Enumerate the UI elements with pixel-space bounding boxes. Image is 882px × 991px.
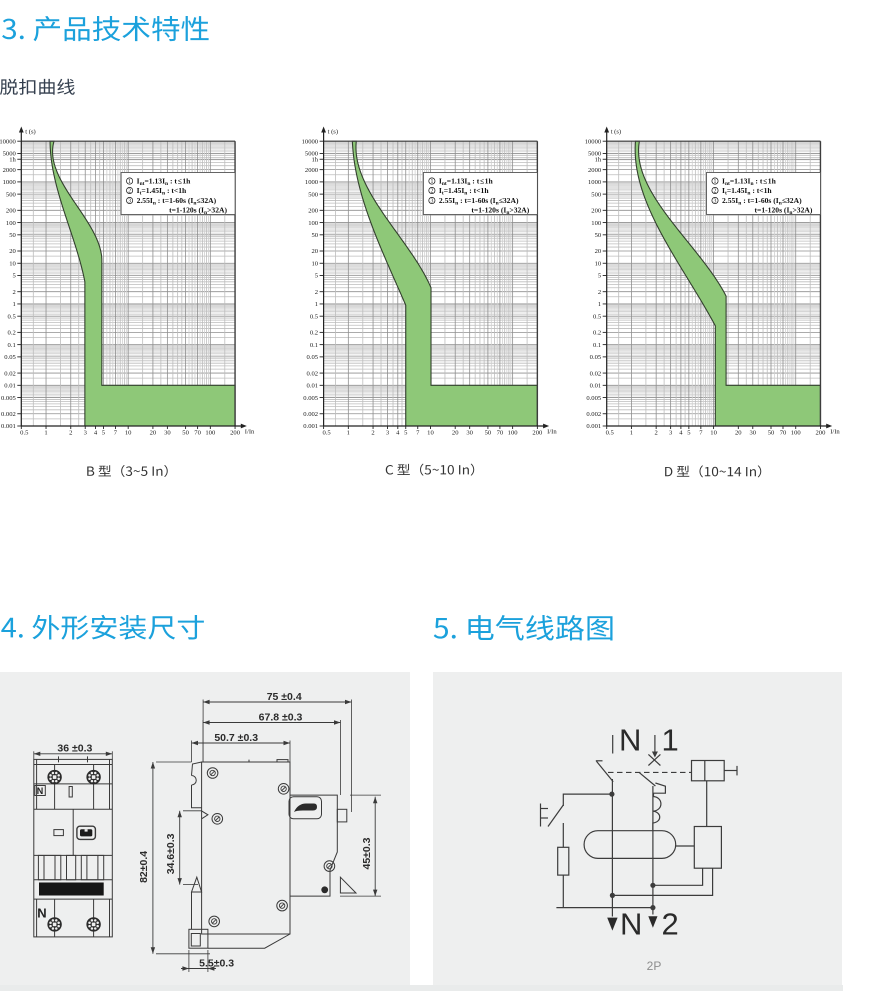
svg-text:200: 200 <box>591 208 602 215</box>
svg-text:3: 3 <box>84 430 88 437</box>
svg-text:0.01: 0.01 <box>590 383 602 390</box>
svg-text:100: 100 <box>308 220 319 227</box>
svg-text:2000: 2000 <box>3 167 17 174</box>
svg-text:1: 1 <box>347 430 350 437</box>
svg-text:20: 20 <box>452 430 459 437</box>
svg-text:7: 7 <box>699 430 703 437</box>
svg-text:0.1: 0.1 <box>593 342 601 349</box>
svg-text:1: 1 <box>128 179 131 185</box>
svg-text:2: 2 <box>371 430 374 437</box>
svg-text:0.01: 0.01 <box>4 383 16 390</box>
svg-text:10: 10 <box>710 430 717 437</box>
svg-text:1h: 1h <box>595 156 602 163</box>
svg-text:4: 4 <box>94 430 98 437</box>
svg-text:0.2: 0.2 <box>593 330 601 337</box>
svg-text:0.02: 0.02 <box>4 370 16 377</box>
svg-text:200: 200 <box>308 208 319 215</box>
svg-text:2: 2 <box>598 289 601 296</box>
svg-text:t (s): t (s) <box>25 129 35 136</box>
svg-text:2: 2 <box>128 189 131 195</box>
svg-text:10000: 10000 <box>585 138 602 145</box>
svg-text:1000: 1000 <box>305 179 319 186</box>
svg-text:0.002: 0.002 <box>303 411 318 418</box>
svg-text:70: 70 <box>194 430 201 437</box>
svg-text:2: 2 <box>69 430 72 437</box>
svg-text:I/In: I/In <box>547 429 557 436</box>
svg-text:It=1.45In : t<1h: It=1.45In : t<1h <box>439 186 489 197</box>
svg-text:0.005: 0.005 <box>586 395 602 402</box>
svg-text:0.1: 0.1 <box>8 342 16 349</box>
svg-text:0.1: 0.1 <box>310 342 318 349</box>
svg-text:75 ±0.4: 75 ±0.4 <box>267 691 302 703</box>
svg-text:500: 500 <box>308 191 319 198</box>
svg-text:45±0.3: 45±0.3 <box>361 837 373 869</box>
svg-text:1: 1 <box>630 430 633 437</box>
svg-text:3: 3 <box>128 199 131 205</box>
svg-text:0.001: 0.001 <box>303 423 318 430</box>
svg-text:It=1.45In : t<1h: It=1.45In : t<1h <box>137 186 187 197</box>
svg-text:20: 20 <box>150 430 157 437</box>
svg-text:0.005: 0.005 <box>303 395 319 402</box>
svg-text:50: 50 <box>312 232 319 239</box>
svg-text:100: 100 <box>791 430 802 437</box>
svg-text:20: 20 <box>595 248 602 255</box>
svg-text:200: 200 <box>6 208 17 215</box>
svg-text:2000: 2000 <box>588 167 602 174</box>
svg-text:1h: 1h <box>312 156 319 163</box>
svg-text:It=1.45In : t<1h: It=1.45In : t<1h <box>722 186 772 197</box>
svg-text:20: 20 <box>735 430 742 437</box>
svg-text:1: 1 <box>662 723 679 758</box>
svg-text:10000: 10000 <box>0 138 17 145</box>
svg-text:36 ±0.3: 36 ±0.3 <box>57 742 92 754</box>
svg-text:50: 50 <box>182 430 189 437</box>
svg-text:82±0.4: 82±0.4 <box>138 851 150 883</box>
svg-text:5: 5 <box>13 273 17 280</box>
svg-text:4: 4 <box>679 430 683 437</box>
svg-text:0.02: 0.02 <box>307 370 319 377</box>
svg-text:0.5: 0.5 <box>8 313 17 320</box>
svg-text:7: 7 <box>416 430 420 437</box>
svg-text:5.5±0.3: 5.5±0.3 <box>199 958 234 970</box>
svg-text:1: 1 <box>44 430 47 437</box>
svg-text:5: 5 <box>404 430 408 437</box>
svg-text:2: 2 <box>714 189 717 195</box>
svg-text:34.6±0.3: 34.6±0.3 <box>165 833 177 874</box>
svg-text:67.8 ±0.3: 67.8 ±0.3 <box>259 711 303 723</box>
svg-text:0.2: 0.2 <box>310 330 318 337</box>
svg-text:10: 10 <box>427 430 434 437</box>
svg-text:3: 3 <box>669 430 673 437</box>
svg-text:0.5: 0.5 <box>606 430 615 437</box>
svg-text:0.05: 0.05 <box>4 354 16 361</box>
svg-text:0.05: 0.05 <box>307 354 319 361</box>
svg-text:70: 70 <box>780 430 787 437</box>
svg-text:I/In: I/In <box>245 429 255 436</box>
svg-text:1: 1 <box>714 179 717 185</box>
svg-text:1h: 1h <box>9 156 16 163</box>
svg-text:30: 30 <box>164 430 171 437</box>
svg-text:2P: 2P <box>647 959 662 973</box>
svg-text:10000: 10000 <box>302 138 319 145</box>
svg-text:5: 5 <box>598 273 602 280</box>
svg-text:N: N <box>620 907 642 942</box>
svg-text:200: 200 <box>816 430 827 437</box>
svg-text:50: 50 <box>485 430 492 437</box>
svg-text:t=1-120s (In>32A): t=1-120s (In>32A) <box>755 206 813 217</box>
svg-text:10: 10 <box>9 260 16 267</box>
svg-text:0.002: 0.002 <box>586 411 601 418</box>
svg-text:50.7 ±0.3: 50.7 ±0.3 <box>214 732 258 744</box>
svg-text:100: 100 <box>508 430 519 437</box>
svg-text:1: 1 <box>13 301 16 308</box>
svg-text:100: 100 <box>205 430 216 437</box>
svg-text:0.001: 0.001 <box>586 423 601 430</box>
svg-text:N: N <box>37 786 44 796</box>
svg-text:0.01: 0.01 <box>307 383 319 390</box>
svg-text:2000: 2000 <box>305 167 319 174</box>
svg-text:t=1-120s (In>32A): t=1-120s (In>32A) <box>471 206 529 217</box>
svg-text:30: 30 <box>466 430 473 437</box>
svg-text:2: 2 <box>315 289 318 296</box>
svg-text:3: 3 <box>386 430 390 437</box>
svg-text:100: 100 <box>6 220 17 227</box>
svg-text:0.005: 0.005 <box>1 395 17 402</box>
svg-text:0.002: 0.002 <box>1 411 16 418</box>
svg-text:1000: 1000 <box>588 179 602 186</box>
svg-text:10: 10 <box>595 260 602 267</box>
svg-text:500: 500 <box>6 191 17 198</box>
svg-text:0.5: 0.5 <box>593 313 602 320</box>
svg-text:200: 200 <box>230 430 241 437</box>
svg-text:5: 5 <box>687 430 691 437</box>
svg-text:100: 100 <box>591 220 602 227</box>
svg-text:0.2: 0.2 <box>8 330 16 337</box>
svg-text:20: 20 <box>9 248 16 255</box>
svg-text:0.05: 0.05 <box>590 354 602 361</box>
svg-text:50: 50 <box>768 430 775 437</box>
svg-text:t=1-120s (In>32A): t=1-120s (In>32A) <box>169 206 227 217</box>
svg-text:N: N <box>619 723 641 758</box>
svg-text:2: 2 <box>430 189 433 195</box>
svg-text:30: 30 <box>749 430 756 437</box>
svg-text:1: 1 <box>598 301 601 308</box>
svg-text:4: 4 <box>396 430 400 437</box>
svg-text:200: 200 <box>532 430 543 437</box>
svg-text:0.5: 0.5 <box>20 430 29 437</box>
svg-text:20: 20 <box>312 248 319 255</box>
svg-text:N: N <box>37 906 46 921</box>
svg-text:3: 3 <box>430 199 433 205</box>
svg-text:2: 2 <box>662 907 679 942</box>
svg-text:0.001: 0.001 <box>1 423 16 430</box>
svg-text:10: 10 <box>125 430 132 437</box>
svg-text:1: 1 <box>430 179 433 185</box>
svg-text:2: 2 <box>13 289 16 296</box>
svg-text:t (s): t (s) <box>328 129 338 136</box>
svg-text:5: 5 <box>315 273 319 280</box>
svg-text:50: 50 <box>595 232 602 239</box>
svg-text:I/In: I/In <box>830 429 840 436</box>
svg-text:10: 10 <box>312 260 319 267</box>
svg-text:2: 2 <box>655 430 658 437</box>
svg-text:0.5: 0.5 <box>322 430 331 437</box>
svg-text:50: 50 <box>9 232 16 239</box>
svg-text:0.5: 0.5 <box>310 313 319 320</box>
svg-text:3: 3 <box>714 199 717 205</box>
svg-text:1: 1 <box>315 301 318 308</box>
svg-text:1000: 1000 <box>3 179 17 186</box>
svg-text:70: 70 <box>497 430 504 437</box>
svg-text:0.02: 0.02 <box>590 370 602 377</box>
svg-text:500: 500 <box>591 191 602 198</box>
svg-text:7: 7 <box>114 430 118 437</box>
svg-text:t (s): t (s) <box>611 129 621 136</box>
svg-text:5: 5 <box>102 430 106 437</box>
